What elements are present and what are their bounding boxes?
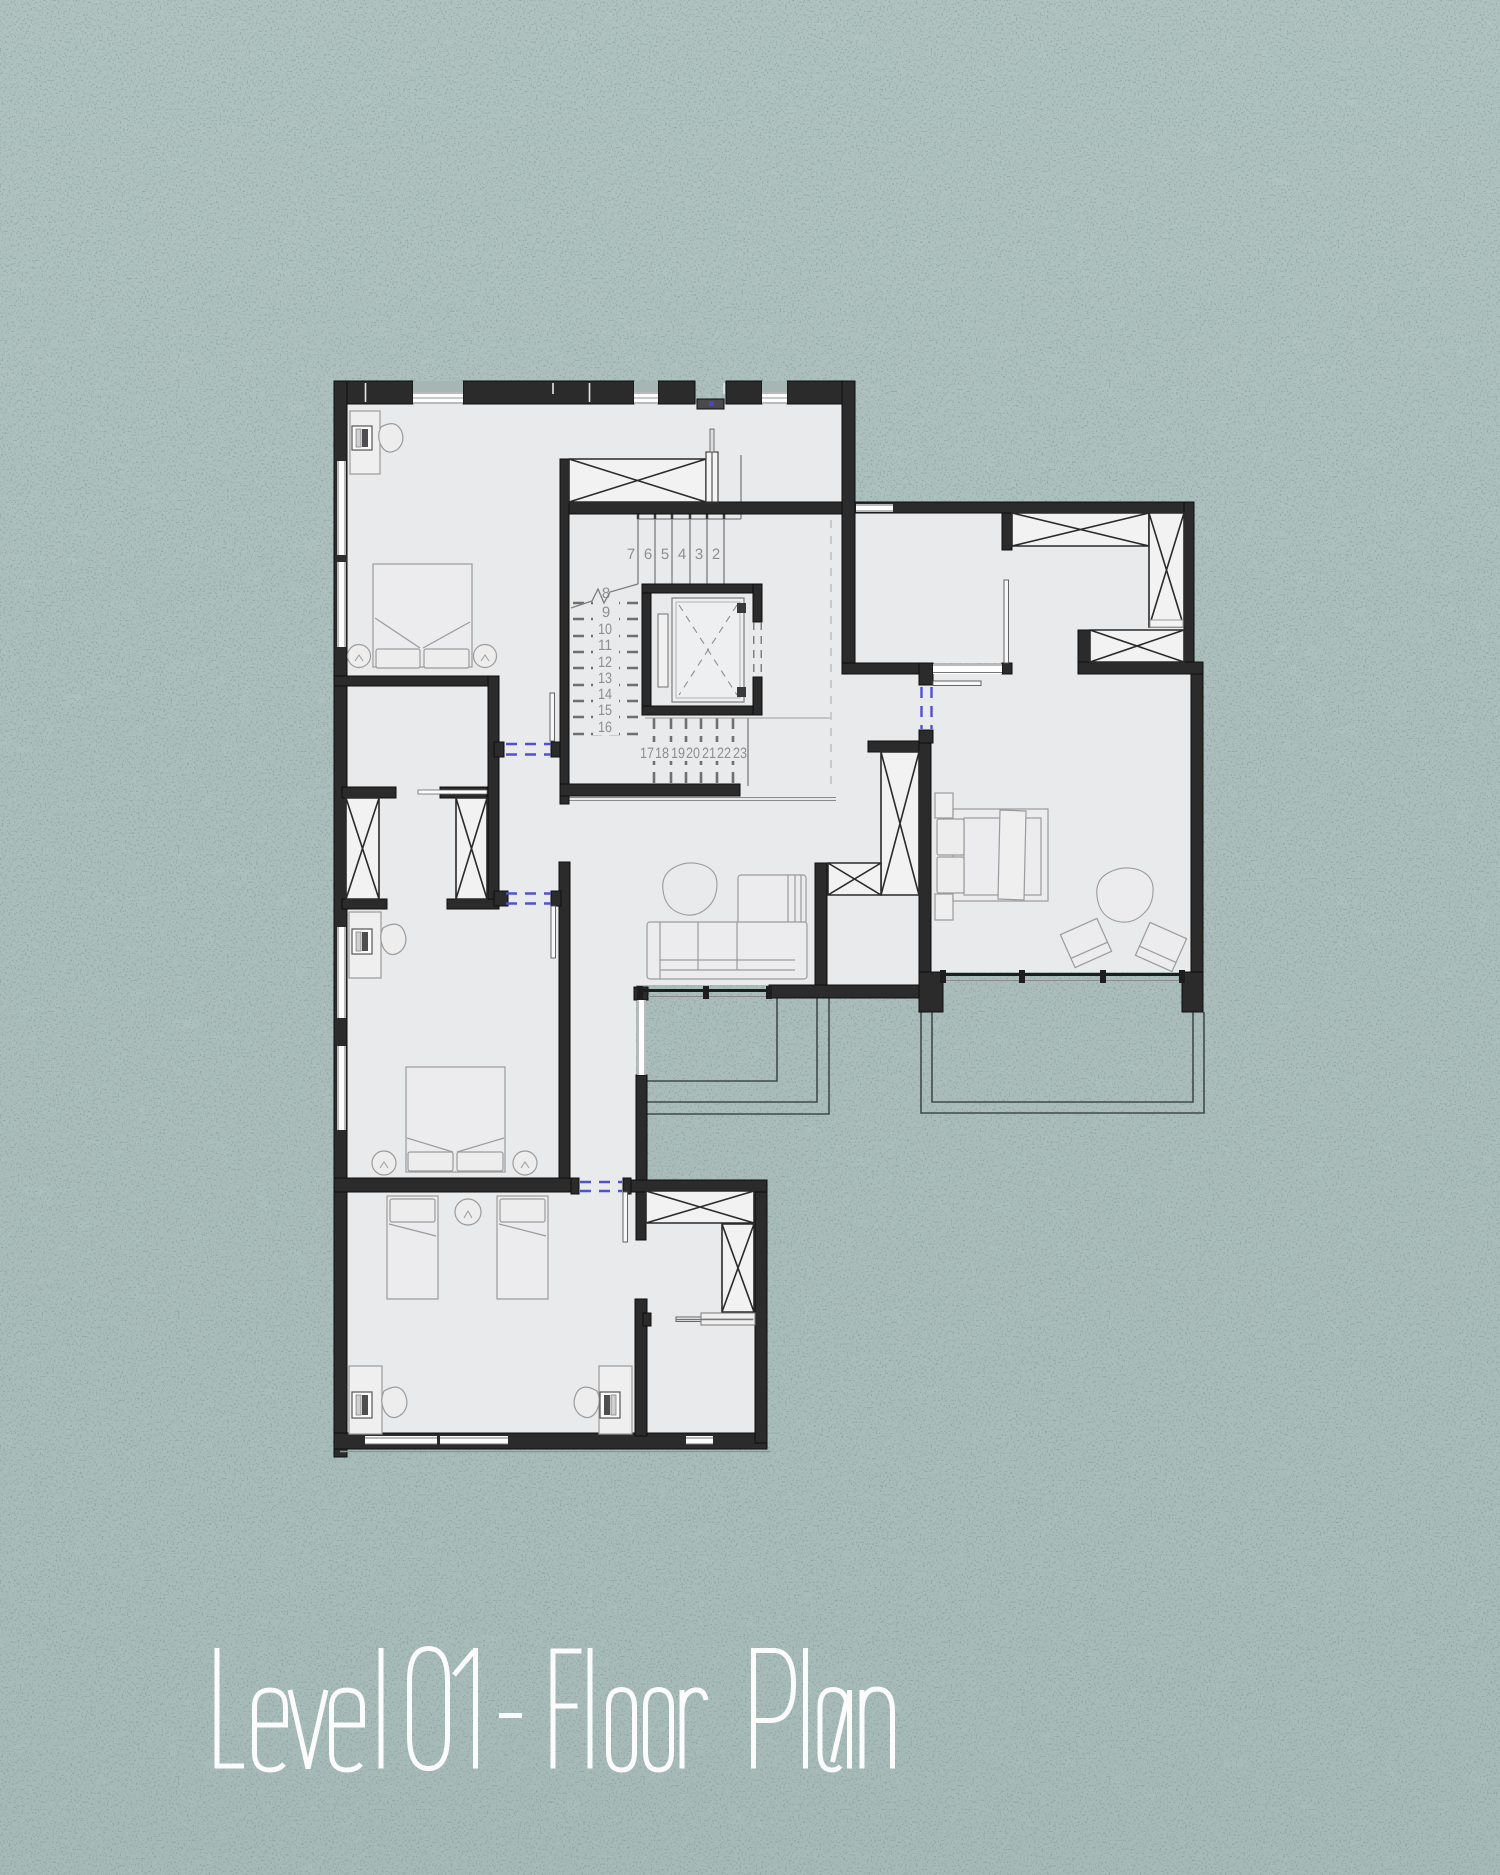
svg-text:5: 5 <box>661 546 669 563</box>
svg-text:12: 12 <box>598 654 612 671</box>
svg-text:6: 6 <box>644 546 652 563</box>
svg-text:18: 18 <box>655 745 669 762</box>
svg-text:4: 4 <box>678 546 686 563</box>
svg-text:23: 23 <box>733 745 747 762</box>
svg-text:20: 20 <box>686 745 700 762</box>
svg-text:11: 11 <box>598 637 612 654</box>
svg-text:3: 3 <box>695 546 703 563</box>
svg-text:21: 21 <box>702 745 716 762</box>
svg-text:14: 14 <box>598 686 612 703</box>
svg-text:19: 19 <box>671 745 685 762</box>
svg-text:10: 10 <box>598 621 612 638</box>
svg-text:13: 13 <box>598 670 612 687</box>
svg-text:7: 7 <box>627 546 635 563</box>
svg-text:15: 15 <box>598 702 612 719</box>
svg-text:17: 17 <box>640 745 654 762</box>
svg-text:22: 22 <box>717 745 731 762</box>
svg-text:16: 16 <box>598 719 612 736</box>
svg-text:9: 9 <box>602 604 610 621</box>
svg-text:2: 2 <box>712 546 720 563</box>
